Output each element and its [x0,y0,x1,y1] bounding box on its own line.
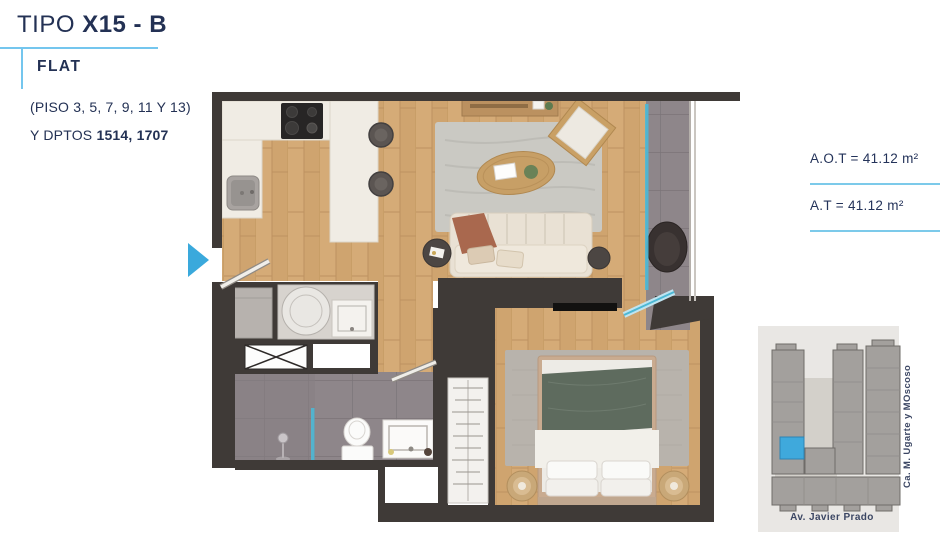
title-prefix: TIPO [17,11,75,38]
wall-closet-top [433,308,495,378]
stove [281,103,323,139]
pillow [547,461,597,479]
map-tooth [812,505,828,511]
units-numbers: 1514, 1707 [96,127,168,143]
pillow [602,461,650,479]
tv [553,303,617,311]
linen-closet [245,345,307,369]
pillow [601,479,651,496]
floorplan-sheet: TIPO X15 - B FLAT (PISO 3, 5, 7, 9, 11 Y… [0,0,940,553]
wall-left-lower [212,282,235,468]
floor-plan-canvas [0,0,940,553]
wall-opening [313,344,370,368]
units-prefix: Y DPTOS [30,127,96,143]
shower-glass [311,408,315,460]
site-map [758,326,900,532]
bar-stool-seat [375,178,388,191]
vanity [383,420,433,458]
area-summary: A.O.T = 41.12 m² A.T = 41.12 m² [810,151,940,245]
street-label-bottom: Av. Javier Prado [762,512,902,523]
bed [535,356,659,510]
utility-sink [332,300,372,337]
wall-top [212,92,740,101]
unit-type-label: FLAT [37,58,81,76]
balcony-railing [689,101,696,301]
area-at: A.T = 41.12 m² [810,198,940,232]
nightstand [507,471,537,501]
wall-right [700,296,714,522]
pillow [546,479,598,496]
side-table [423,239,451,267]
wardrobe [448,378,488,503]
bedroom-window [385,467,438,503]
living-room [423,98,616,277]
balcony-chair [647,222,687,272]
map-tooth [844,505,860,511]
wall-left-upper [212,101,222,248]
map-tooth [876,505,892,511]
balcony-glass-wall [645,104,649,290]
kitchen-peninsula [330,101,378,242]
nightstand [659,471,689,501]
wall-bath-bottom [235,460,378,470]
corridor-floor [378,281,433,374]
floor-lamp [588,247,610,269]
page-title: TIPO X15 - B [17,11,167,39]
floors-label: (PISO 3, 5, 7, 9, 11 Y 13) [30,99,191,115]
map-right-wing [866,346,900,474]
title-side-rule [21,47,23,89]
laundry-niche [222,282,378,342]
title-underline [0,47,158,49]
map-mid-block [805,448,835,474]
washing-machine [282,287,330,335]
bed-blanket [542,367,652,436]
street-label-right: Ca. M. Ugarte y MOscoso [902,340,922,512]
shower-area [235,372,315,462]
bedroom [505,350,689,510]
kitchen-sink [227,176,259,210]
floor-plan [212,92,740,522]
map-tooth [780,505,796,511]
wall-closet-right [488,378,495,507]
sofa [450,213,592,277]
area-aot: A.O.T = 41.12 m² [810,151,940,185]
entrance-arrow-icon [188,243,209,277]
title-code: X15 - B [82,11,167,38]
wall-bottom [440,505,714,522]
map-highlighted-unit [780,437,804,459]
bar-stool-seat [375,129,388,142]
toilet [342,418,373,461]
units-label: Y DPTOS 1514, 1707 [30,127,169,143]
